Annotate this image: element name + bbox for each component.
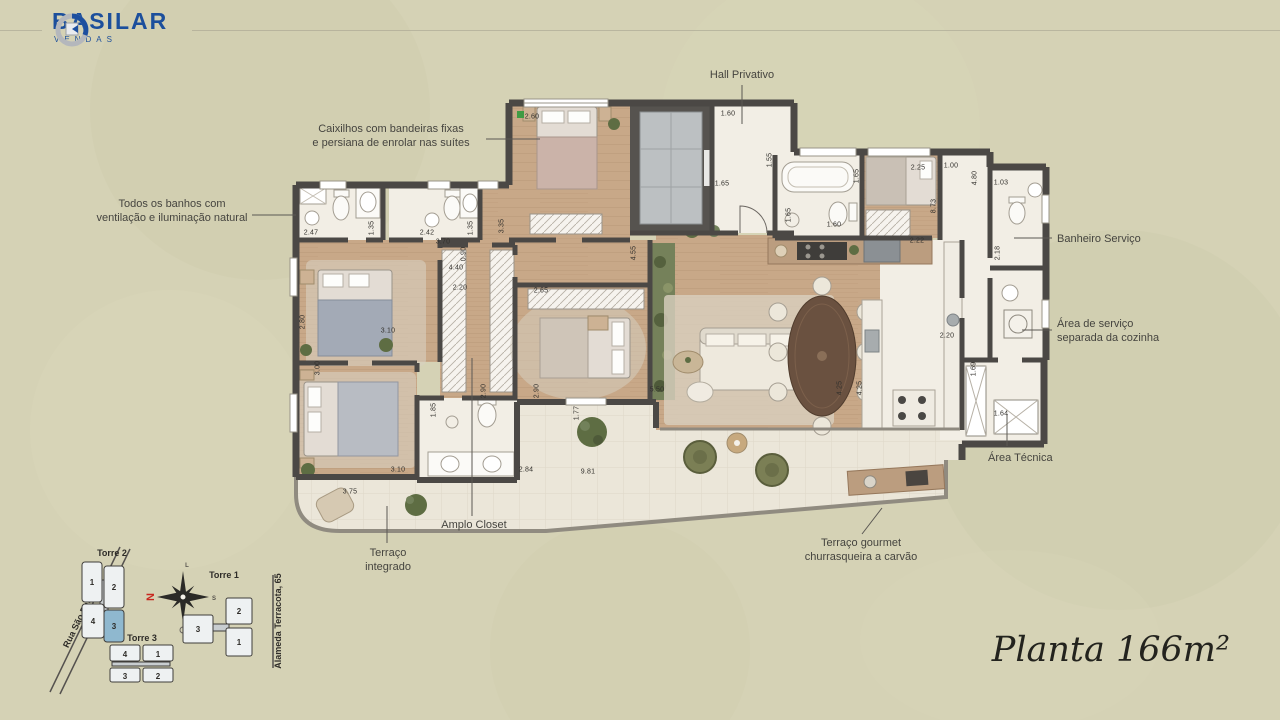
svg-text:1: 1 bbox=[237, 638, 242, 647]
header-rule-left bbox=[0, 30, 42, 31]
annotation-banheiro-servico: Banheiro Serviço bbox=[1057, 232, 1187, 246]
svg-text:4: 4 bbox=[123, 650, 128, 659]
svg-text:L: L bbox=[185, 563, 189, 569]
svg-text:1: 1 bbox=[90, 578, 95, 587]
compass-north: N bbox=[145, 593, 157, 601]
elevator bbox=[630, 103, 712, 233]
svg-text:3: 3 bbox=[196, 625, 201, 634]
annotation-amplo-closet: Amplo Closet bbox=[428, 518, 520, 532]
street-label-right: Alameda Terracota, 65 bbox=[273, 573, 283, 668]
tower-3-label: Torre 3 bbox=[127, 633, 157, 643]
annotation-area-servico: Área de serviço separada da cozinha bbox=[1057, 317, 1187, 345]
svg-text:1: 1 bbox=[156, 650, 161, 659]
floor-plan-graphic: Rua São Paulo Alameda Terracota, 65 Torr… bbox=[0, 0, 1280, 720]
header-rule-right bbox=[192, 30, 1280, 31]
svg-text:2: 2 bbox=[237, 607, 242, 616]
brand-logo: BASILAR VENDAS bbox=[52, 10, 168, 44]
annotation-area-tecnica: Área Técnica bbox=[988, 451, 1078, 465]
svg-text:3: 3 bbox=[123, 672, 128, 681]
svg-text:S: S bbox=[212, 596, 216, 602]
tower-2-label: Torre 2 bbox=[97, 548, 127, 558]
window-automation-icon bbox=[517, 111, 524, 118]
annotation-hall: Hall Privativo bbox=[692, 68, 792, 82]
svg-text:4: 4 bbox=[91, 617, 96, 626]
svg-text:2: 2 bbox=[156, 672, 161, 681]
brand-logo-icon bbox=[52, 10, 92, 50]
annotation-banhos: Todos os banhos com ventilação e ilumina… bbox=[96, 197, 248, 225]
annotation-caixilhos: Caixilhos com bandeiras fixas e persiana… bbox=[298, 122, 484, 150]
svg-text:3: 3 bbox=[112, 622, 117, 631]
page-title: Planta 166m² bbox=[992, 630, 1230, 670]
svg-text:2: 2 bbox=[112, 583, 117, 592]
tower-1-label: Torre 1 bbox=[209, 570, 239, 580]
annotation-terraco-integrado: Terraço integrado bbox=[350, 546, 426, 574]
annotation-terraco-gourmet: Terraço gourmet churrasqueira a carvão bbox=[796, 536, 926, 564]
floor-plan-page: Rua São Paulo Alameda Terracota, 65 Torr… bbox=[0, 0, 1280, 720]
